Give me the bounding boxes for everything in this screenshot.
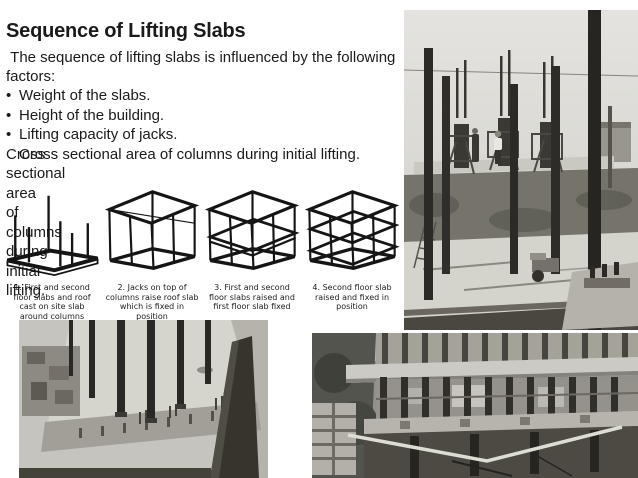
bullet-text: Weight of the slabs. [19,86,150,106]
stage-3-slabs-raised-drawing [203,184,302,282]
bullet-marker: • [6,106,19,126]
stage-4-fixed-drawing [303,184,402,282]
bullet-marker: • [6,86,19,106]
diagram-stage-3: 3. First and second floor slabs raised a… [202,184,302,332]
lift-slab-sequence-diagram: 1. First and second floor slabs and roof… [2,184,402,332]
slide-canvas: Sequence of Lifting Slabs The sequence o… [0,0,638,478]
bullet-item: • Height of the building. [6,106,400,126]
diagram-stage-4: 4. Second floor slab raised and fixed in… [302,184,402,332]
stage-1-caption: 1. First and second floor slabs and roof… [2,283,102,321]
stage-2-roof-raised-drawing [103,184,202,282]
bullet-marker: • [6,125,19,145]
page-title: Sequence of Lifting Slabs [6,20,400,43]
stage-4-caption: 4. Second floor slab raised and fixed in… [302,283,402,312]
photo-site-slab-columns [19,320,268,478]
bullet-text: Lifting capacity of jacks. [19,125,177,145]
stage-2-caption: 2. Jacks on top of columns raise roof sl… [102,283,202,321]
stage-1-columns-drawing [3,184,102,282]
photo-site-slab-columns-art [19,320,268,478]
diagram-stage-1: 1. First and second floor slabs and roof… [2,184,102,332]
photo-raised-slab-building-art [312,333,638,478]
diagram-stage-2: 2. Jacks on top of columns raise roof sl… [102,184,202,332]
bullet-item: • Lifting capacity of jacks. [6,125,400,145]
bullet-item: • Weight of the slabs. [6,86,400,106]
bullet-text: Height of the building. [19,106,164,126]
photo-columns-lifting-jacks-art [404,10,638,330]
photo-raised-slab-building [312,333,638,478]
photo-columns-lifting-jacks [404,10,638,330]
stage-3-caption: 3. First and second floor slabs raised a… [202,283,302,312]
intro-text: The sequence of lifting slabs is influen… [6,48,400,86]
